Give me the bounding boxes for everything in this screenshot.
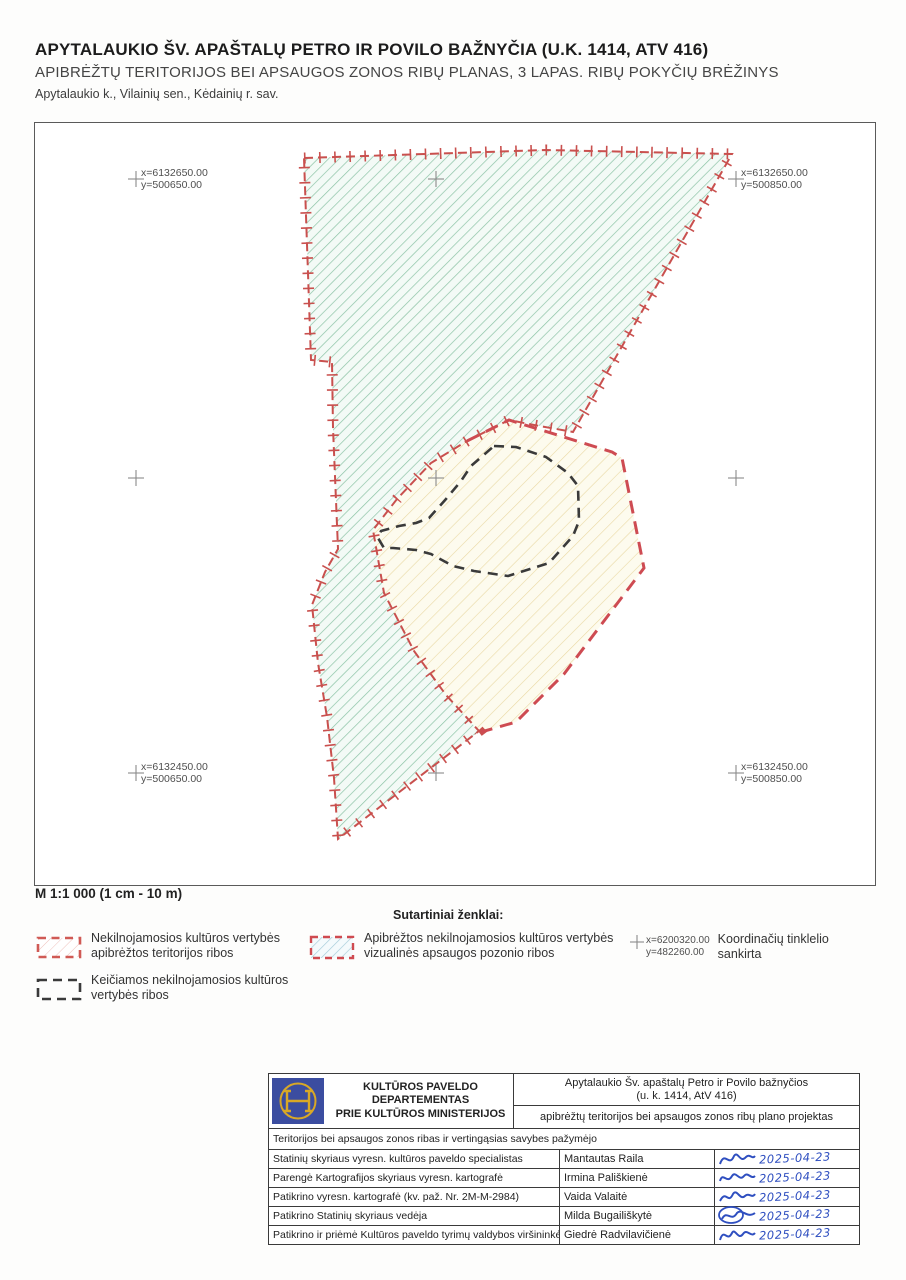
- department-cell: KULTŪROS PAVELDO DEPARTEMENTAS PRIE KULT…: [269, 1074, 513, 1128]
- title-block-header-row: KULTŪROS PAVELDO DEPARTEMENTAS PRIE KULT…: [269, 1074, 859, 1128]
- legend-item-label: Apibrėžtos nekilnojamosios kultūros vert…: [364, 931, 613, 961]
- legend-item-label: Koordinačių tinkleliosankirta: [718, 932, 829, 962]
- red-dashed-swatch-icon: [35, 931, 83, 963]
- black-dashed-swatch-icon: [35, 973, 83, 1005]
- legend-item-label: Keičiamos nekilnojamosios kultūrosvertyb…: [91, 973, 288, 1003]
- department-name: KULTŪROS PAVELDO DEPARTEMENTAS PRIE KULT…: [328, 1081, 513, 1122]
- signature-cell: 2025-04-23: [714, 1188, 859, 1206]
- grid-cross-icon: [630, 932, 646, 958]
- signature-date: 2025-04-23: [759, 1149, 831, 1166]
- signature-scribble-icon: [717, 1167, 757, 1187]
- coord-label-top-left: x=6132650.00y=500650.00: [141, 167, 208, 191]
- signature-cell: 2025-04-23: [714, 1150, 859, 1168]
- role-cell: Patikrino Statinių skyriaus vedėja: [269, 1207, 559, 1225]
- signature-cell: 2025-04-23: [714, 1226, 859, 1244]
- role-cell: Patikrino ir priėmė Kultūros paveldo tyr…: [269, 1226, 559, 1244]
- page-subtitle: APIBRĖŽTŲ TERITORIJOS BEI APSAUGOS ZONOS…: [35, 64, 779, 81]
- signature-date: 2025-04-23: [759, 1225, 831, 1242]
- title-block-table: KULTŪROS PAVELDO DEPARTEMENTAS PRIE KULT…: [268, 1073, 860, 1245]
- signature-cell: 2025-04-23: [714, 1169, 859, 1187]
- legend-heading: Sutartiniai ženklai:: [393, 908, 503, 922]
- hatched-swatch-icon: [308, 931, 356, 963]
- legend-item-label: Nekilnojamosios kultūros vertybėsapibrėž…: [91, 931, 280, 961]
- legend-item-changed-boundary: Keičiamos nekilnojamosios kultūrosvertyb…: [35, 973, 288, 1005]
- table-row: Patikrino ir priėmė Kultūros paveldo tyr…: [269, 1225, 859, 1244]
- signature-date: 2025-04-23: [759, 1206, 831, 1223]
- table-row: Statinių skyriaus vyresn. kultūros pavel…: [269, 1149, 859, 1168]
- name-cell: Vaida Valaitė: [559, 1188, 714, 1206]
- role-cell: Parengė Kartografijos skyriaus vyresn. k…: [269, 1169, 559, 1187]
- role-cell: Patikrino vyresn. kartografė (kv. paž. N…: [269, 1188, 559, 1206]
- map-frame: x=6132650.00y=500650.00 x=6132650.00y=50…: [34, 122, 876, 886]
- legend-item-protection-subzone: Apibrėžtos nekilnojamosios kultūros vert…: [308, 931, 613, 963]
- object-name: Apytalaukio Šv. apaštalų Petro ir Povilo…: [514, 1074, 859, 1106]
- coord-label-top-right: x=6132650.00y=500850.00: [741, 167, 808, 191]
- section-header-row: Teritorijos bei apsaugos zonos ribas ir …: [269, 1128, 859, 1149]
- legend-item-grid-intersection: x=6200320.00y=482260.00 Koordinačių tink…: [630, 932, 829, 962]
- table-row: Patikrino vyresn. kartografė (kv. paž. N…: [269, 1187, 859, 1206]
- object-cell: Apytalaukio Šv. apaštalų Petro ir Povilo…: [513, 1074, 859, 1128]
- coord-label-bottom-right: x=6132450.00y=500850.00: [741, 761, 808, 785]
- signature-scribble-icon: [717, 1205, 757, 1225]
- table-row: Patikrino Statinių skyriaus vedėja Milda…: [269, 1206, 859, 1225]
- signature-scribble-icon: [717, 1186, 757, 1206]
- project-name: apibrėžtų teritorijos bei apsaugos zonos…: [514, 1106, 859, 1128]
- legend-cross-coords: x=6200320.00y=482260.00: [646, 935, 710, 958]
- page-title: APYTALAUKIO ŠV. APAŠTALŲ PETRO IR POVILO…: [35, 40, 708, 60]
- coord-label-bottom-left: x=6132450.00y=500650.00: [141, 761, 208, 785]
- name-cell: Giedrė Radvilavičienė: [559, 1226, 714, 1244]
- map-scale: M 1:1 000 (1 cm - 10 m): [35, 886, 182, 901]
- signature-date: 2025-04-23: [759, 1168, 831, 1185]
- heritage-department-logo-icon: [272, 1078, 324, 1124]
- name-cell: Milda Bugailiškytė: [559, 1207, 714, 1225]
- table-row: Parengė Kartografijos skyriaus vyresn. k…: [269, 1168, 859, 1187]
- signature-scribble-icon: [717, 1148, 757, 1168]
- role-cell: Statinių skyriaus vyresn. kultūros pavel…: [269, 1150, 559, 1168]
- signature-date: 2025-04-23: [759, 1187, 831, 1204]
- name-cell: Irmina Pališkienė: [559, 1169, 714, 1187]
- signature-scribble-icon: [717, 1224, 757, 1244]
- page-location: Apytalaukio k., Vilainių sen., Kėdainių …: [35, 87, 278, 101]
- legend-item-territory-boundary: Nekilnojamosios kultūros vertybėsapibrėž…: [35, 931, 280, 963]
- signature-cell: 2025-04-23: [714, 1207, 859, 1225]
- name-cell: Mantautas Raila: [559, 1150, 714, 1168]
